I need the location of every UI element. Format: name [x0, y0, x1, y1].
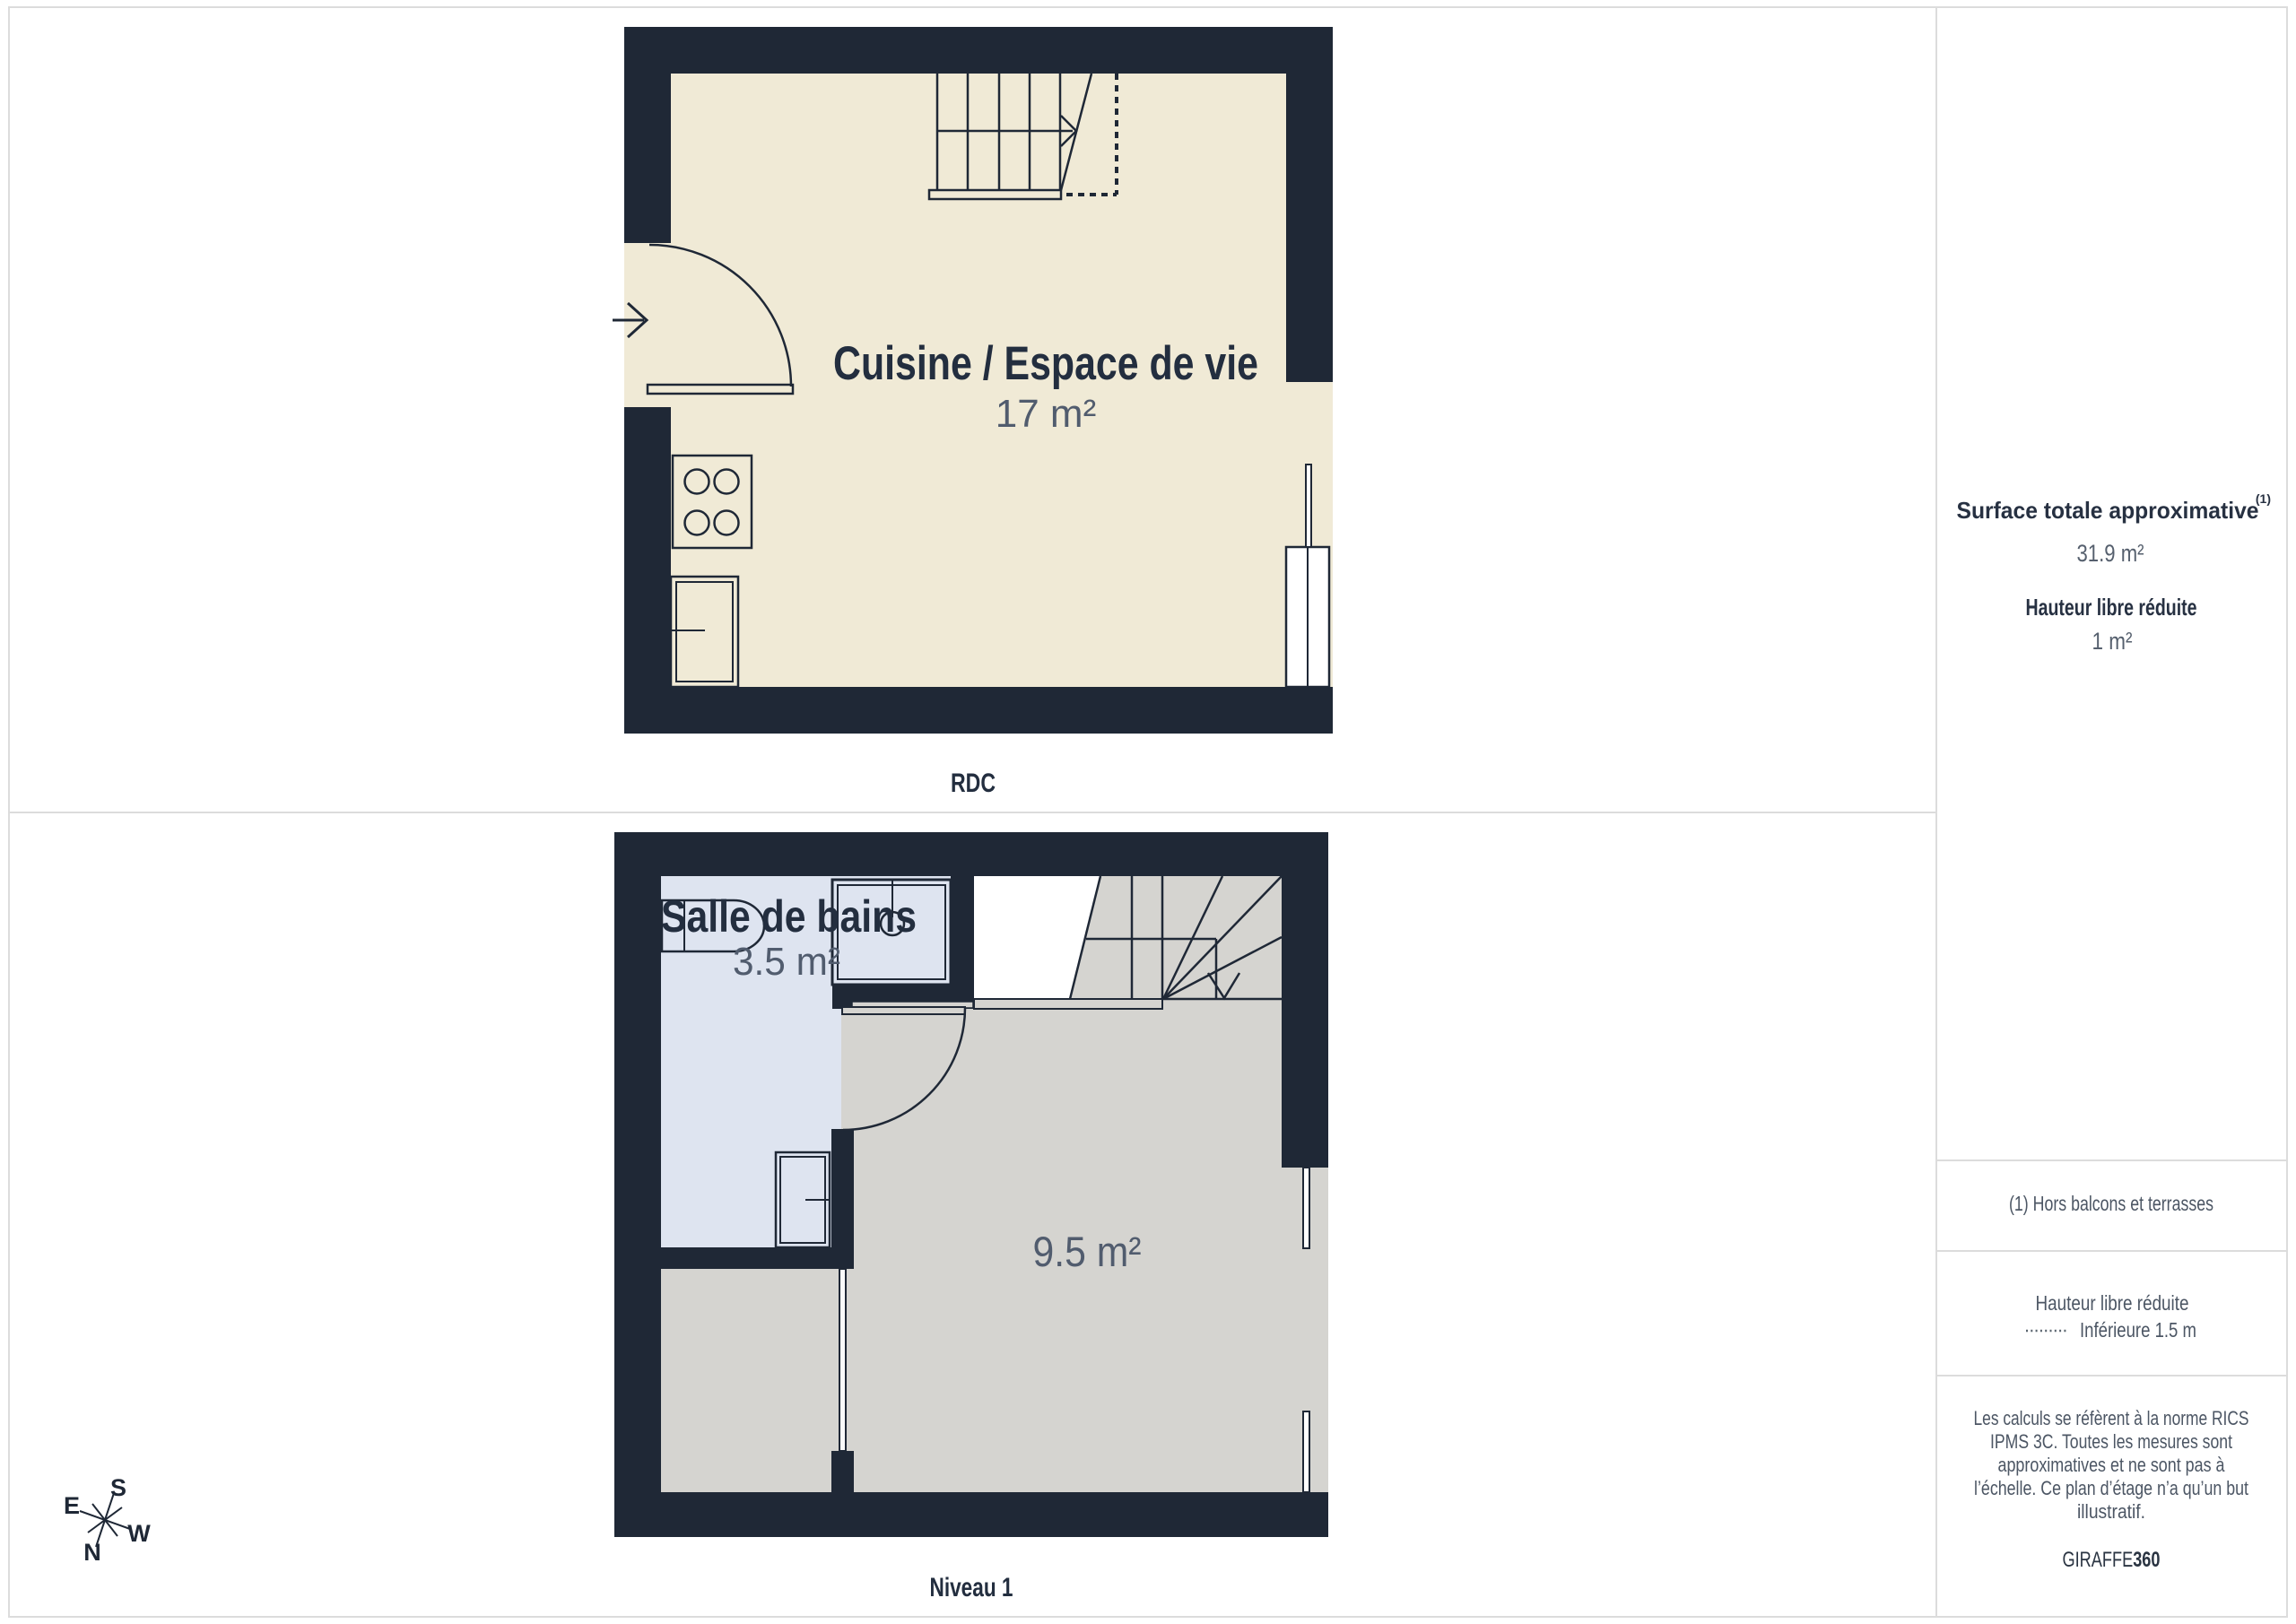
- svg-text:9.5 m²: 9.5 m²: [1033, 1228, 1142, 1275]
- svg-text:Les calculs se réfèrent à la n: Les calculs se réfèrent à la norme RICS: [1974, 1407, 2249, 1429]
- svg-text:Niveau 1: Niveau 1: [930, 1573, 1013, 1602]
- svg-text:RDC: RDC: [951, 769, 996, 798]
- svg-text:S: S: [110, 1474, 126, 1501]
- svg-text:3.5 m²: 3.5 m²: [733, 940, 840, 984]
- svg-text:Hauteur libre réduite: Hauteur libre réduite: [2036, 1291, 2189, 1315]
- svg-text:W: W: [127, 1520, 151, 1547]
- svg-text:Inférieure 1.5 m: Inférieure 1.5 m: [2080, 1318, 2196, 1342]
- svg-text:Cuisine / Espace de vie: Cuisine / Espace de vie: [833, 337, 1258, 390]
- svg-text:N: N: [83, 1539, 101, 1566]
- svg-text:17 m²: 17 m²: [996, 392, 1096, 436]
- svg-text:Hauteur libre réduite: Hauteur libre réduite: [2026, 594, 2197, 621]
- svg-text:illustratif.: illustratif.: [2077, 1500, 2145, 1523]
- svg-text:(1) Hors balcons et terrasses: (1) Hors balcons et terrasses: [2009, 1192, 2213, 1215]
- svg-text:IPMS 3C. Toutes les mesures so: IPMS 3C. Toutes les mesures sont: [1990, 1430, 2232, 1453]
- svg-text:approximatives et ne sont pas: approximatives et ne sont pas à: [1998, 1454, 2226, 1476]
- svg-text:GIRAFFE360: GIRAFFE360: [2063, 1548, 2161, 1572]
- svg-text:Salle de bains: Salle de bains: [661, 891, 917, 942]
- svg-text:E: E: [64, 1492, 80, 1519]
- svg-text:(1): (1): [2256, 491, 2271, 506]
- svg-text:Surface totale approximative: Surface totale approximative: [1957, 497, 2259, 524]
- svg-text:l’échelle. Ce plan d’étage n’a: l’échelle. Ce plan d’étage n’a qu’un but: [1974, 1477, 2248, 1499]
- svg-text:1 m²: 1 m²: [2092, 628, 2133, 655]
- svg-text:31.9 m²: 31.9 m²: [2077, 540, 2144, 567]
